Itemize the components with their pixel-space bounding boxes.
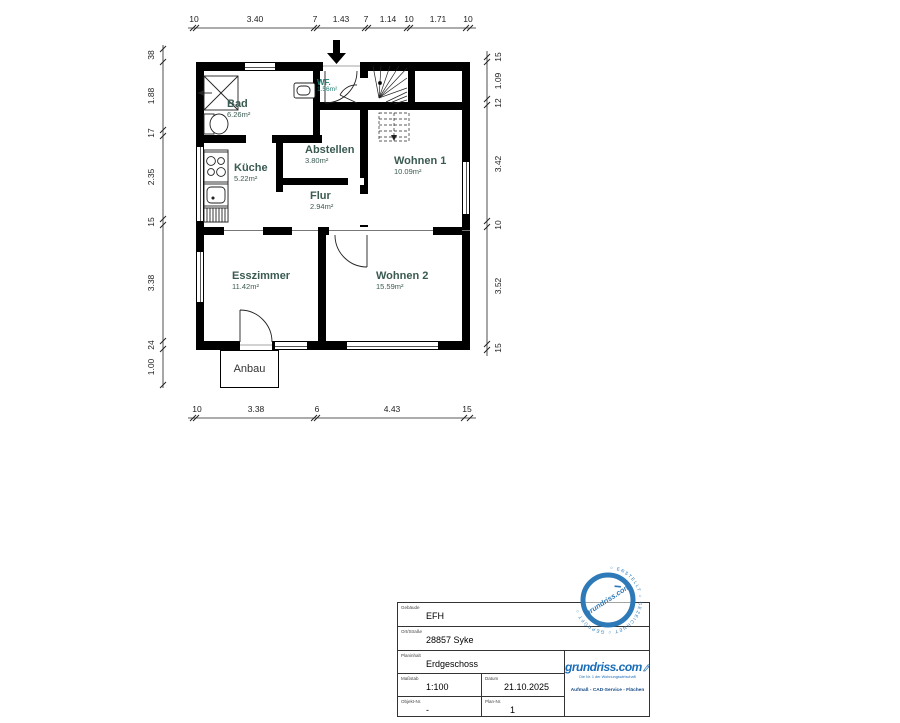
dimension-label: 2.35 — [146, 169, 156, 186]
room-label-wohnen1: Wohnen 1 10.09m² — [394, 156, 446, 175]
field-label: Maßstab — [401, 676, 419, 681]
title-block-cell-scale: Maßstab 1:100 — [398, 673, 481, 696]
room-label-flur: Flur 2.94m² — [310, 191, 333, 210]
room-name: Wohnen 1 — [394, 156, 446, 168]
dimension-label: 3.52 — [493, 278, 503, 295]
field-value: EFH — [426, 611, 444, 621]
field-value: 1:100 — [426, 682, 449, 692]
floorplan-sheet: Bad 6.26m² WF. 1.56m² Küche 5.22m² Abste… — [0, 0, 900, 723]
title-block-cell-plan-no: Plan-Nr. 1 — [481, 696, 564, 717]
anbau-door-opening — [240, 341, 272, 350]
wall-pier — [263, 227, 292, 235]
room-area: 2.94m² — [310, 203, 333, 211]
dimension-label: 15 — [146, 217, 156, 226]
room-label-wohnen2: Wohnen 2 15.59m² — [376, 271, 428, 290]
window — [462, 162, 470, 214]
brand-tagline: Die Nr. 1 der Wohnungswirtschaft — [565, 675, 650, 679]
title-block-row-building: Gebäude EFH — [398, 603, 649, 626]
entrance-arrow-icon — [327, 40, 346, 64]
field-label: Gebäude — [401, 605, 420, 610]
entrance-door-opening — [323, 62, 360, 71]
room-area: 6.26m² — [227, 111, 250, 119]
stair-direction-arrow — [391, 135, 397, 141]
sink-fixture — [204, 184, 228, 206]
room-area: 10.09m² — [394, 168, 446, 176]
dimension-label: 24 — [146, 340, 156, 349]
title-block-row-address: Ort/Straße 28857 Syke — [398, 626, 649, 650]
dimension-label: 15 — [493, 343, 503, 352]
field-label: Plan-Nr. — [485, 699, 501, 704]
room-name: Esszimmer — [232, 271, 290, 283]
room-area: 1.56m² — [317, 87, 337, 94]
anbau-door-swing — [240, 310, 272, 342]
dimension-label: 4.43 — [384, 404, 401, 414]
wall-pier — [433, 227, 462, 235]
dimension-label: 3.38 — [248, 404, 265, 414]
field-value: 1 — [510, 705, 515, 715]
counter-hatch — [204, 208, 228, 222]
bad-door-opening — [246, 135, 272, 143]
title-block-row-plan-content: Planinhalt Erdgeschoss — [398, 650, 564, 673]
wf-door-swing — [340, 85, 357, 103]
window — [245, 62, 275, 71]
wall-pier — [196, 227, 224, 235]
wall — [360, 102, 470, 110]
dimension-label: 10 — [189, 14, 198, 24]
dimension-label: 15 — [493, 52, 503, 61]
stair-winder — [373, 66, 407, 104]
room-name: Bad — [227, 99, 250, 111]
field-label: Datum — [485, 676, 498, 681]
dimension-label: 3.40 — [247, 14, 264, 24]
dimension-label: 17 — [146, 128, 156, 137]
room-label-bad: Bad 6.26m² — [227, 99, 250, 118]
dimension-label: 1.43 — [333, 14, 350, 24]
pencil-icon — [643, 661, 650, 674]
field-label: Ort/Straße — [401, 629, 422, 634]
dimension-label: 10 — [463, 14, 472, 24]
field-label: Objekt-Nr. — [401, 699, 421, 704]
dimension-label: 1.14 — [380, 14, 397, 24]
dimension-label: 6 — [315, 404, 320, 414]
room-name: Flur — [310, 191, 333, 203]
window — [347, 341, 438, 350]
room-label-kueche: Küche 5.22m² — [234, 163, 268, 182]
dimension-label: 1.00 — [146, 359, 156, 376]
room-area: 11.42m² — [232, 283, 290, 291]
dimension-label: 1.71 — [430, 14, 447, 24]
dimension-label: 1.88 — [146, 88, 156, 105]
room-label-esszimmer: Esszimmer 11.42m² — [232, 271, 290, 290]
kitchen-counter — [204, 150, 228, 222]
flur-wohnen1-opening — [360, 194, 368, 225]
annex-box: Anbau — [220, 350, 279, 388]
dimension-label: 10 — [404, 14, 413, 24]
room-name: Abstellen — [305, 145, 355, 157]
field-value: 21.10.2025 — [504, 682, 549, 692]
dimension-label: 3.38 — [146, 275, 156, 292]
brand-logo-text: grundriss.com — [565, 660, 642, 674]
dimension-label: 38 — [146, 50, 156, 59]
title-block-cell-object-no: Objekt-Nr. - — [398, 696, 481, 717]
window — [275, 341, 307, 350]
title-block-cell-date: Datum 21.10.2025 — [481, 673, 564, 696]
dimension-label: 10 — [493, 220, 503, 229]
window — [196, 147, 204, 221]
stair-dashed — [379, 113, 409, 141]
room-label-wf: WF. 1.56m² — [317, 79, 337, 94]
room-area: 15.59m² — [376, 283, 428, 291]
dimension-label: 7 — [364, 14, 369, 24]
room-label-abstellen: Abstellen 3.80m² — [305, 145, 355, 164]
room-name: Wohnen 2 — [376, 271, 428, 283]
dimension-label: 10 — [192, 404, 201, 414]
field-value: 28857 Syke — [426, 635, 474, 645]
toilet-fixture — [204, 114, 228, 134]
room-area: 3.80m² — [305, 157, 355, 165]
title-block: Gebäude EFH Ort/Straße 28857 Syke Planin… — [397, 602, 650, 717]
washbasin-fixture — [294, 83, 315, 98]
annex-label: Anbau — [234, 363, 266, 375]
field-value: Erdgeschoss — [426, 659, 478, 669]
room-name: Küche — [234, 163, 268, 175]
logo-cell: grundriss.com Die Nr. 1 der Wohnungswirt… — [564, 650, 650, 717]
stove-fixture — [204, 152, 228, 182]
dimension-label: 12 — [493, 98, 503, 107]
brand-services: Aufmaß - CAD-Service - Flächen — [565, 688, 650, 693]
wf-door-opening — [360, 78, 368, 102]
abstellen-door-opening — [348, 178, 364, 185]
field-value: - — [426, 705, 429, 715]
dimension-label: 3.42 — [493, 156, 503, 173]
room-area: 5.22m² — [234, 175, 268, 183]
wall — [318, 227, 326, 342]
dimension-label: 7 — [313, 14, 318, 24]
window — [196, 252, 204, 302]
open-boundary-line — [196, 230, 470, 231]
wohnen2-door-swing — [335, 235, 367, 267]
field-label: Planinhalt — [401, 653, 421, 658]
dimension-label: 15 — [462, 404, 471, 414]
dimension-label: 1.09 — [493, 73, 503, 90]
